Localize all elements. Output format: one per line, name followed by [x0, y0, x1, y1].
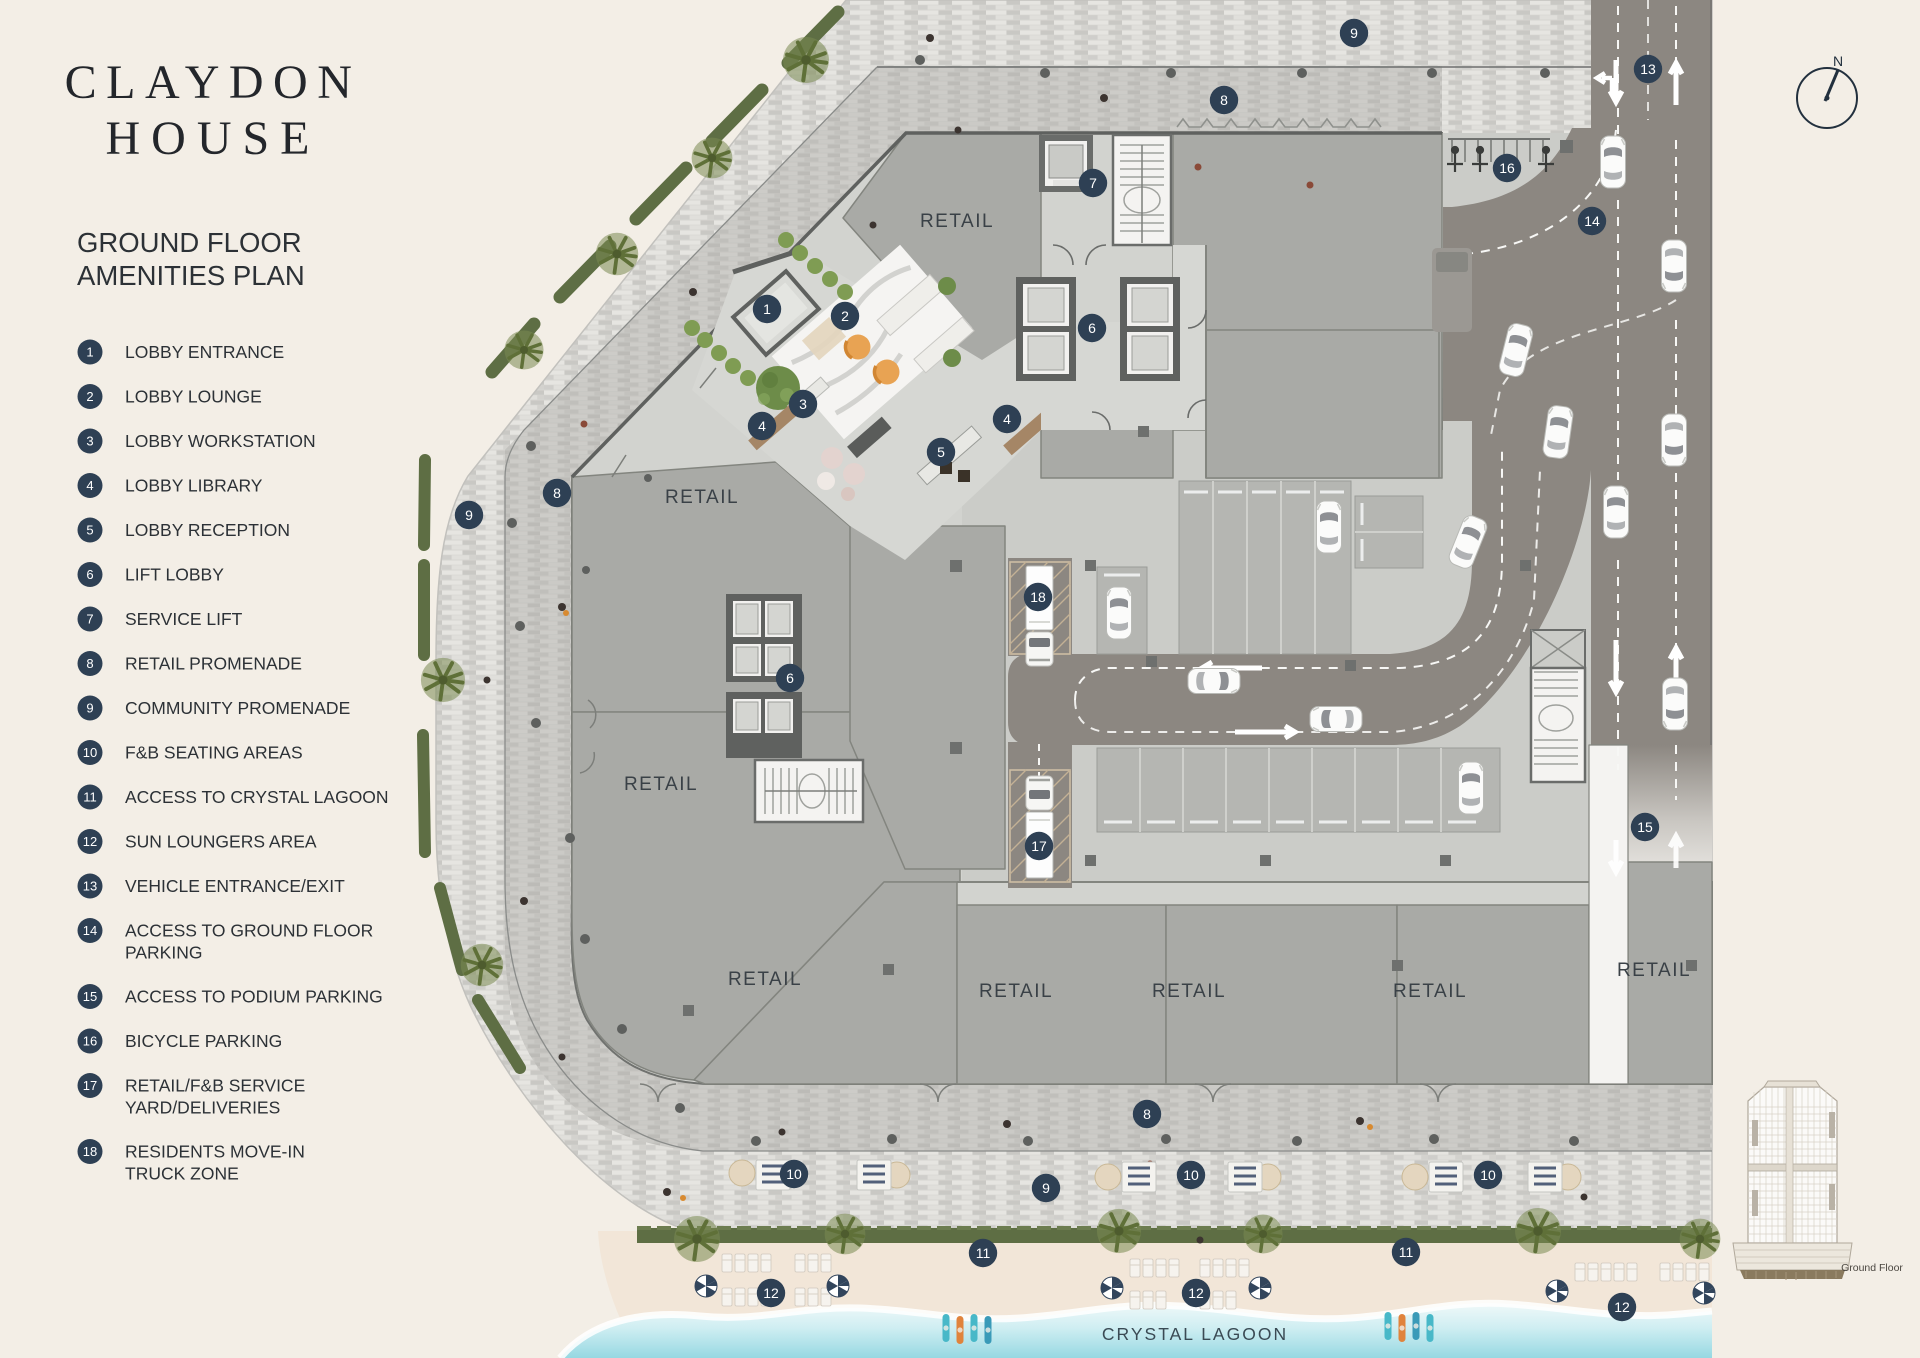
svg-text:RETAIL: RETAIL [1152, 981, 1226, 1002]
svg-text:14: 14 [83, 923, 97, 938]
svg-text:16: 16 [1499, 160, 1515, 176]
svg-text:1: 1 [86, 345, 93, 360]
svg-text:PARKING: PARKING [125, 943, 202, 963]
svg-text:RETAIL/F&B SERVICE: RETAIL/F&B SERVICE [125, 1076, 305, 1096]
svg-text:LIFT LOBBY: LIFT LOBBY [125, 565, 224, 585]
svg-text:HOUSE: HOUSE [105, 112, 320, 165]
svg-text:8: 8 [1143, 1106, 1151, 1122]
svg-text:10: 10 [786, 1166, 802, 1182]
svg-text:ACCESS TO GROUND FLOOR: ACCESS TO GROUND FLOOR [125, 921, 373, 941]
svg-text:8: 8 [1220, 92, 1228, 108]
svg-text:10: 10 [1183, 1167, 1199, 1183]
svg-text:13: 13 [1640, 61, 1656, 77]
svg-text:4: 4 [1003, 411, 1011, 427]
svg-text:CLAYDON: CLAYDON [65, 56, 362, 109]
svg-text:9: 9 [86, 701, 93, 716]
svg-text:16: 16 [83, 1034, 97, 1049]
svg-text:7: 7 [1089, 175, 1097, 191]
svg-text:Ground Floor: Ground Floor [1841, 1262, 1903, 1274]
svg-text:F&B SEATING AREAS: F&B SEATING AREAS [125, 743, 303, 763]
svg-text:6: 6 [786, 670, 794, 686]
svg-text:18: 18 [1030, 589, 1046, 605]
svg-text:ACCESS TO CRYSTAL LAGOON: ACCESS TO CRYSTAL LAGOON [125, 787, 389, 807]
svg-text:6: 6 [86, 567, 93, 582]
svg-text:5: 5 [937, 444, 945, 460]
svg-text:8: 8 [86, 656, 93, 671]
svg-text:RETAIL: RETAIL [728, 969, 802, 990]
svg-text:LOBBY LOUNGE: LOBBY LOUNGE [125, 387, 262, 407]
svg-text:VEHICLE ENTRANCE/EXIT: VEHICLE ENTRANCE/EXIT [125, 876, 345, 896]
svg-text:RETAIL: RETAIL [1617, 960, 1691, 981]
svg-text:12: 12 [1188, 1285, 1204, 1301]
svg-text:2: 2 [841, 308, 849, 324]
svg-text:YARD/DELIVERIES: YARD/DELIVERIES [125, 1098, 280, 1118]
svg-text:SUN LOUNGERS AREA: SUN LOUNGERS AREA [125, 832, 317, 852]
svg-text:13: 13 [83, 879, 97, 894]
svg-text:9: 9 [1042, 1180, 1050, 1196]
svg-text:2: 2 [86, 389, 93, 404]
svg-text:11: 11 [83, 790, 97, 805]
svg-text:ACCESS TO PODIUM PARKING: ACCESS TO PODIUM PARKING [125, 987, 383, 1007]
svg-text:17: 17 [1031, 838, 1047, 854]
svg-text:18: 18 [83, 1144, 97, 1159]
svg-text:3: 3 [799, 396, 807, 412]
svg-text:15: 15 [83, 989, 97, 1004]
svg-text:9: 9 [1350, 25, 1358, 41]
svg-text:RETAIL: RETAIL [979, 981, 1053, 1002]
svg-text:11: 11 [976, 1245, 991, 1261]
svg-text:1: 1 [763, 301, 771, 317]
svg-text:7: 7 [86, 612, 93, 627]
svg-text:4: 4 [86, 478, 93, 493]
svg-text:6: 6 [1088, 320, 1096, 336]
svg-text:LOBBY RECEPTION: LOBBY RECEPTION [125, 520, 290, 540]
svg-text:RETAIL: RETAIL [920, 211, 994, 232]
svg-text:RESIDENTS MOVE-IN: RESIDENTS MOVE-IN [125, 1142, 305, 1162]
svg-text:LOBBY LIBRARY: LOBBY LIBRARY [125, 476, 263, 496]
svg-text:9: 9 [465, 507, 473, 523]
svg-text:RETAIL: RETAIL [665, 487, 739, 508]
svg-text:3: 3 [86, 434, 93, 449]
svg-text:12: 12 [763, 1285, 779, 1301]
svg-text:SERVICE LIFT: SERVICE LIFT [125, 609, 243, 629]
svg-text:14: 14 [1584, 213, 1600, 229]
svg-text:10: 10 [1480, 1167, 1496, 1183]
svg-text:COMMUNITY PROMENADE: COMMUNITY PROMENADE [125, 698, 350, 718]
svg-text:BICYCLE PARKING: BICYCLE PARKING [125, 1031, 282, 1051]
svg-text:8: 8 [553, 485, 561, 501]
svg-text:LOBBY ENTRANCE: LOBBY ENTRANCE [125, 342, 284, 362]
svg-text:RETAIL PROMENADE: RETAIL PROMENADE [125, 654, 302, 674]
svg-text:17: 17 [83, 1078, 97, 1093]
svg-text:RETAIL: RETAIL [1393, 981, 1467, 1002]
svg-text:15: 15 [1637, 819, 1653, 835]
svg-text:12: 12 [83, 834, 97, 849]
svg-text:11: 11 [1399, 1244, 1414, 1260]
svg-text:4: 4 [758, 418, 766, 434]
svg-text:N: N [1833, 53, 1843, 69]
svg-text:10: 10 [83, 745, 97, 760]
svg-text:RETAIL: RETAIL [624, 774, 698, 795]
svg-text:12: 12 [1614, 1299, 1630, 1315]
svg-text:5: 5 [86, 523, 93, 538]
svg-text:GROUND FLOOR: GROUND FLOOR [77, 227, 302, 258]
svg-text:TRUCK ZONE: TRUCK ZONE [125, 1164, 239, 1184]
svg-text:AMENITIES PLAN: AMENITIES PLAN [77, 260, 305, 291]
svg-text:CRYSTAL LAGOON: CRYSTAL LAGOON [1102, 1324, 1288, 1344]
svg-text:LOBBY WORKSTATION: LOBBY WORKSTATION [125, 431, 316, 451]
